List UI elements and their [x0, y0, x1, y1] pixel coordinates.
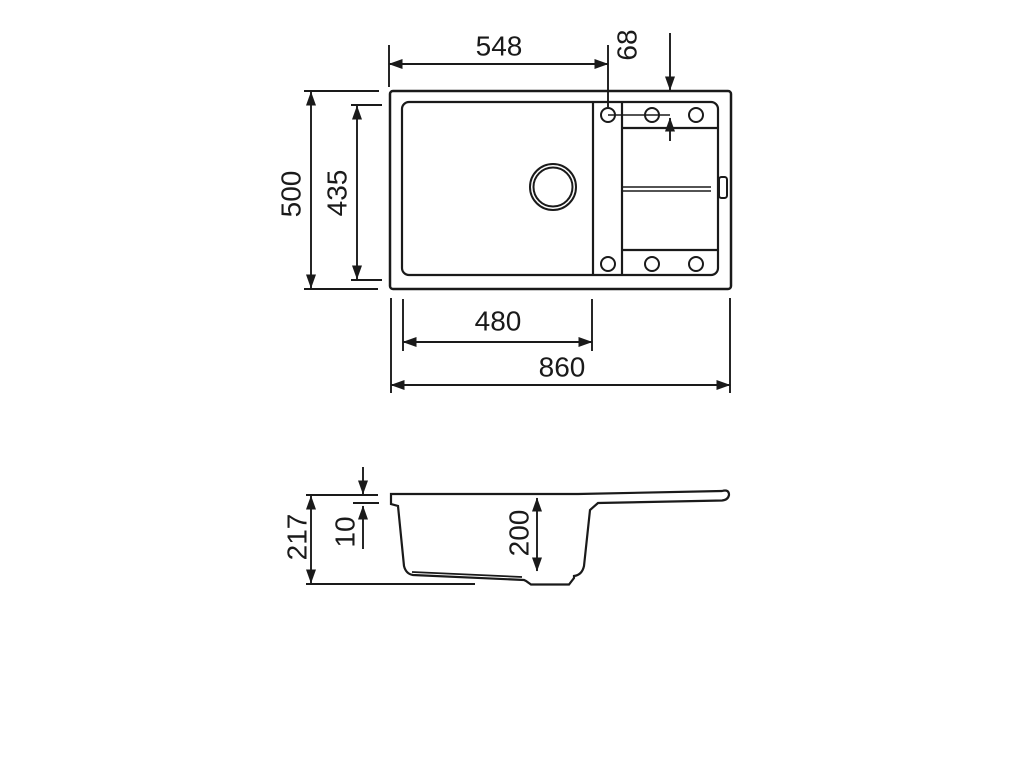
dim-200-label: 200 — [504, 510, 535, 557]
outer-rim — [390, 91, 731, 289]
dim-860-label: 860 — [539, 352, 586, 383]
dim-548-label: 548 — [476, 31, 523, 62]
section-view — [391, 491, 729, 585]
dim-500-label: 500 — [276, 171, 307, 218]
sink-profile-outline — [391, 491, 729, 585]
drain-circle-outer — [530, 164, 576, 210]
section-view-dimension-labels: 217 10 200 — [282, 510, 535, 561]
dim-10-label: 10 — [330, 516, 361, 547]
sink-dimension-drawing: 548 68 500 435 480 860 — [0, 0, 1024, 768]
mounting-hole — [601, 257, 615, 271]
dim-480-label: 480 — [475, 306, 522, 337]
dim-217-label: 217 — [282, 514, 313, 561]
overflow-notch — [719, 177, 727, 198]
mounting-hole — [645, 257, 659, 271]
technical-drawing-page: 548 68 500 435 480 860 — [0, 0, 1024, 768]
drain-circle-inner — [534, 168, 573, 207]
top-view-dimension-labels: 548 68 500 435 480 860 — [276, 29, 643, 382]
dim-435-label: 435 — [322, 170, 353, 217]
top-view-dimensions — [304, 33, 730, 393]
top-view — [390, 91, 731, 289]
mounting-hole — [689, 108, 703, 122]
dim-68-label: 68 — [612, 29, 643, 60]
mounting-hole — [689, 257, 703, 271]
